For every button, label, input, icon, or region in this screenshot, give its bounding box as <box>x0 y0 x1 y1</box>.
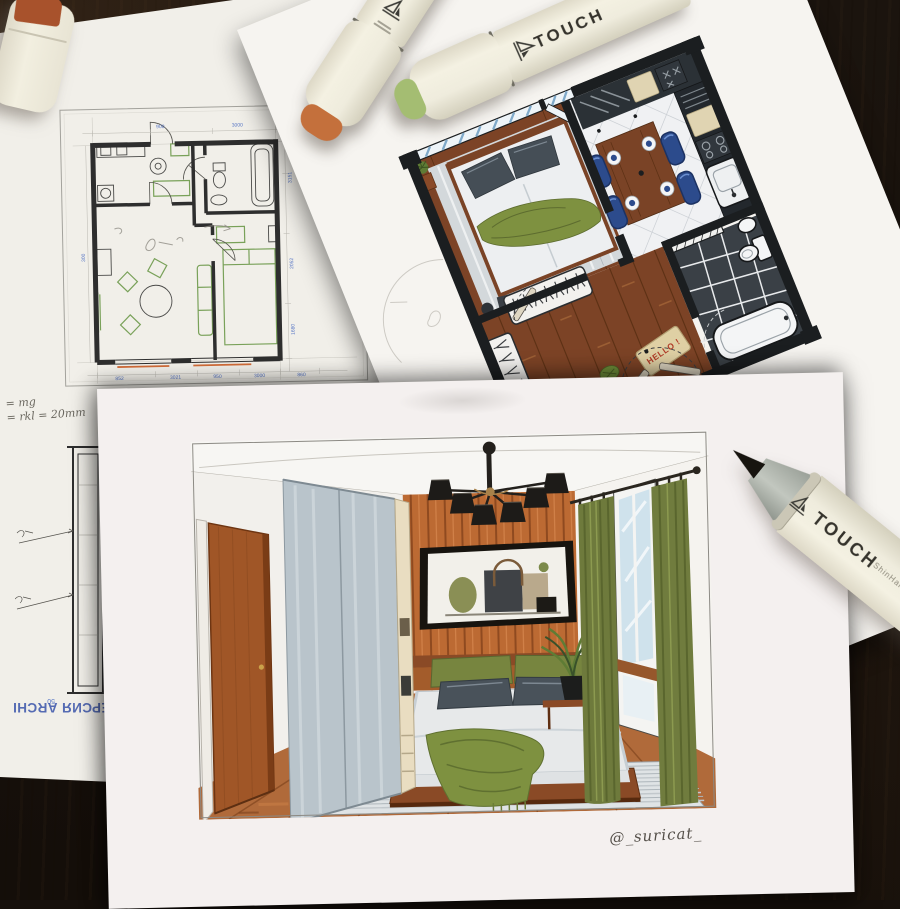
bedroom-perspective-render <box>190 430 716 820</box>
svg-text:3000: 3000 <box>254 373 265 379</box>
wardrobe <box>283 477 416 820</box>
svg-text:852: 852 <box>115 376 124 382</box>
paper-smudge <box>397 385 528 416</box>
photo-of-sketches: { "photo": { "signature": "@_suricat_", … <box>0 0 900 900</box>
svg-text:3151: 3151 <box>287 172 293 183</box>
artist-signature: @_suricat_ <box>609 824 703 847</box>
svg-text:300: 300 <box>81 253 87 262</box>
svg-text:3000: 3000 <box>232 122 243 128</box>
svg-text:3021: 3021 <box>170 375 181 381</box>
section-leaders <box>15 529 73 609</box>
cad-furniture <box>95 142 277 348</box>
terracotta-cap-top <box>14 0 63 27</box>
svg-text:860: 860 <box>297 372 306 378</box>
wall-artwork <box>418 541 577 630</box>
svg-text:900: 900 <box>156 124 165 130</box>
cad-radiator-accent <box>117 364 251 367</box>
svg-text:1680: 1680 <box>290 324 296 335</box>
svg-text:2052: 2052 <box>289 258 295 269</box>
svg-text:950: 950 <box>213 374 222 380</box>
